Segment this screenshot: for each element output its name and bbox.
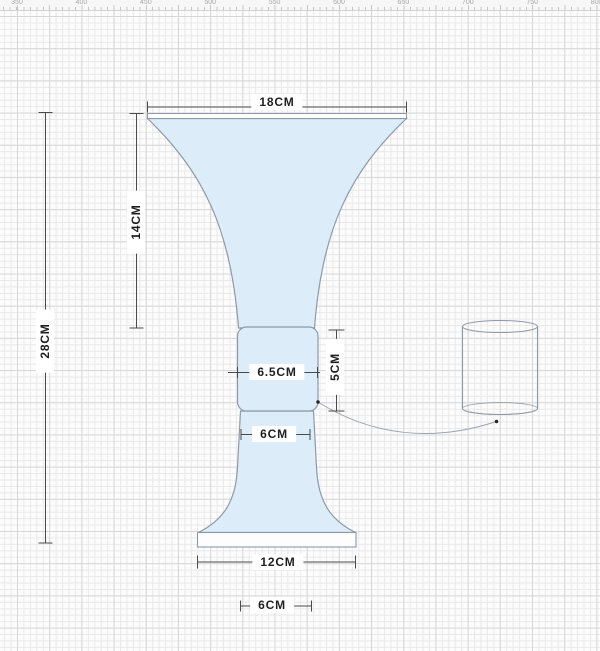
dim-label-neck-width: 6.5CM — [249, 364, 304, 380]
cylinder-body — [463, 327, 538, 415]
dim-label-bell-height: 14CM — [127, 190, 145, 253]
vase-bell[interactable] — [148, 119, 407, 329]
ruler-label: 650 — [398, 0, 410, 7]
ruler-label: 550 — [269, 0, 281, 7]
ruler-label: 700 — [462, 0, 474, 7]
ruler-minor-ticks — [0, 7, 600, 10]
horizontal-ruler: 350400450500550600650700750800 — [0, 0, 600, 11]
cylinder-top-ellipse — [463, 321, 538, 333]
vase-base-plate[interactable] — [198, 533, 357, 548]
leader-line — [316, 400, 498, 433]
dim-label-top-width: 18CM — [251, 94, 302, 110]
ruler-label: 750 — [526, 0, 538, 7]
dim-label-base-width: 12CM — [252, 554, 303, 570]
dim-label-base-bottom-width: 6CM — [250, 597, 294, 613]
ruler-label: 450 — [140, 0, 152, 7]
leader-curve — [318, 402, 497, 434]
vase-shape[interactable] — [148, 114, 407, 548]
dim-label-total-height: 28CM — [36, 309, 54, 372]
ruler-label: 500 — [204, 0, 216, 7]
dim-label-neck-height: 5CM — [326, 339, 344, 395]
ruler-label: 800 — [591, 0, 600, 7]
ruler-label: 350 — [11, 0, 23, 7]
vase-rim[interactable] — [148, 114, 407, 119]
ruler-label: 600 — [333, 0, 345, 7]
detail-cylinder[interactable] — [463, 321, 538, 415]
ruler-label: 400 — [76, 0, 88, 7]
leader-dot-end — [495, 420, 499, 424]
leader-dot-start — [316, 400, 320, 404]
dim-label-stem-width: 6CM — [252, 426, 296, 442]
